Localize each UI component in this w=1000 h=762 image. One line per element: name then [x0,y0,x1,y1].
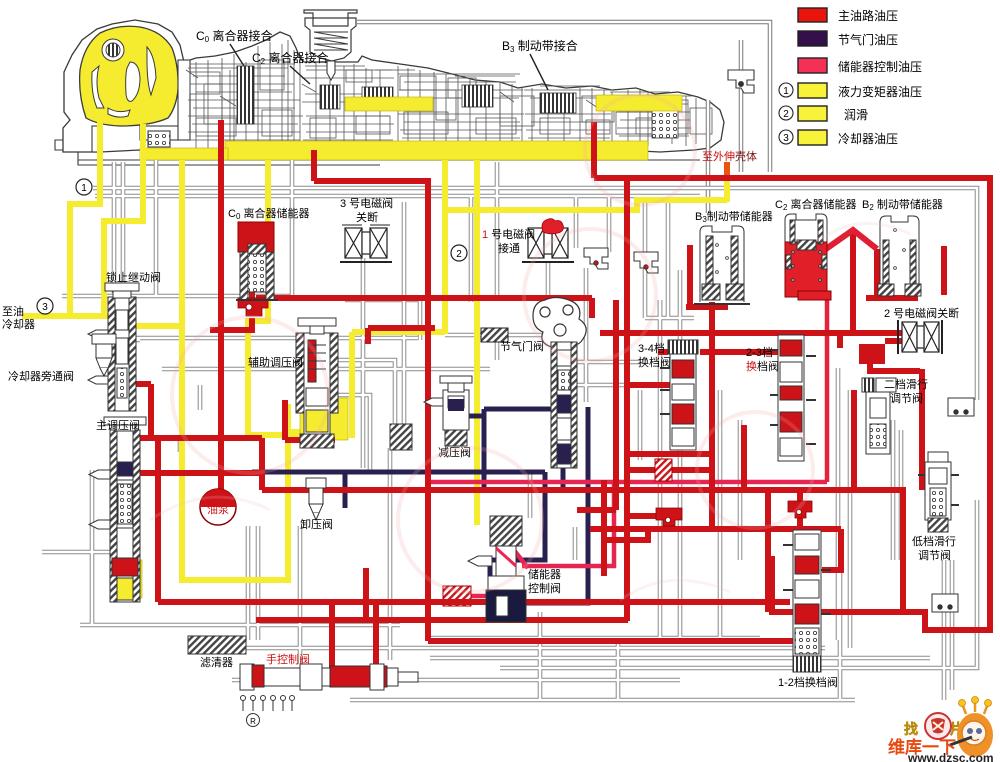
svg-text:节气门油压: 节气门油压 [838,32,898,47]
svg-text:控制阀: 控制阀 [528,581,561,595]
svg-text:2: 2 [456,249,462,260]
svg-text:冷却器: 冷却器 [2,318,35,331]
svg-text:C0 离合器储能器: C0 离合器储能器 [228,206,309,221]
svg-text:B3制动带储能器: B3制动带储能器 [695,209,773,224]
svg-text:2-3档: 2-3档 [746,345,773,359]
svg-text:换档阀: 换档阀 [638,355,671,369]
svg-text:冷却器油压: 冷却器油压 [838,132,898,146]
svg-text:二档滑行: 二档滑行 [884,377,928,391]
svg-text:1-2档换档阀: 1-2档换档阀 [778,675,838,689]
svg-text:储能器控制油压: 储能器控制油压 [838,59,922,74]
svg-text:油泵: 油泵 [207,502,229,516]
svg-text:找: 找 [904,721,918,737]
svg-text:调节阀: 调节阀 [918,548,951,562]
svg-text:关断: 关断 [356,210,378,224]
svg-text:3: 3 [783,133,789,144]
svg-text:3 号电磁阀: 3 号电磁阀 [340,196,393,210]
svg-text:至外伸壳体: 至外伸壳体 [702,149,757,163]
svg-text:1: 1 [783,86,789,97]
svg-text:1 号电磁阀: 1 号电磁阀 [482,227,535,241]
svg-text:润滑: 润滑 [844,108,868,122]
svg-text:2: 2 [783,109,789,120]
svg-text:1: 1 [81,183,87,194]
svg-text:R: R [250,717,256,726]
svg-text:至油: 至油 [2,304,24,318]
svg-text:www.dzsc.com: www.dzsc.com [907,751,994,762]
svg-text:辅助调压阀: 辅助调压阀 [248,355,303,369]
svg-text:C2 离合器储能器: C2 离合器储能器 [775,197,856,212]
svg-text:节气门阀: 节气门阀 [500,339,544,353]
svg-text:调节阀: 调节阀 [890,391,923,405]
svg-text:液力变矩器油压: 液力变矩器油压 [838,84,922,99]
svg-text:手控制阀: 手控制阀 [266,652,310,666]
svg-text:主调压阀: 主调压阀 [96,418,140,432]
svg-text:3-4档: 3-4档 [638,341,665,355]
svg-text:滤清器: 滤清器 [200,656,233,669]
svg-text:卸压阀: 卸压阀 [300,517,333,531]
svg-text:冷却器旁通阀: 冷却器旁通阀 [8,369,74,383]
svg-text:2 号电磁阀关断: 2 号电磁阀关断 [884,306,959,320]
svg-text:储能器: 储能器 [528,567,561,581]
svg-text:换档阀: 换档阀 [746,359,779,373]
svg-text:主油路油压: 主油路油压 [838,8,898,23]
svg-text:B2 制动带储能器: B2 制动带储能器 [862,197,943,212]
svg-text:3: 3 [42,302,48,313]
svg-text:锁止继动阀: 锁止继动阀 [106,270,161,284]
svg-text:接通: 接通 [498,242,520,255]
svg-text:低档滑行: 低档滑行 [912,534,956,548]
